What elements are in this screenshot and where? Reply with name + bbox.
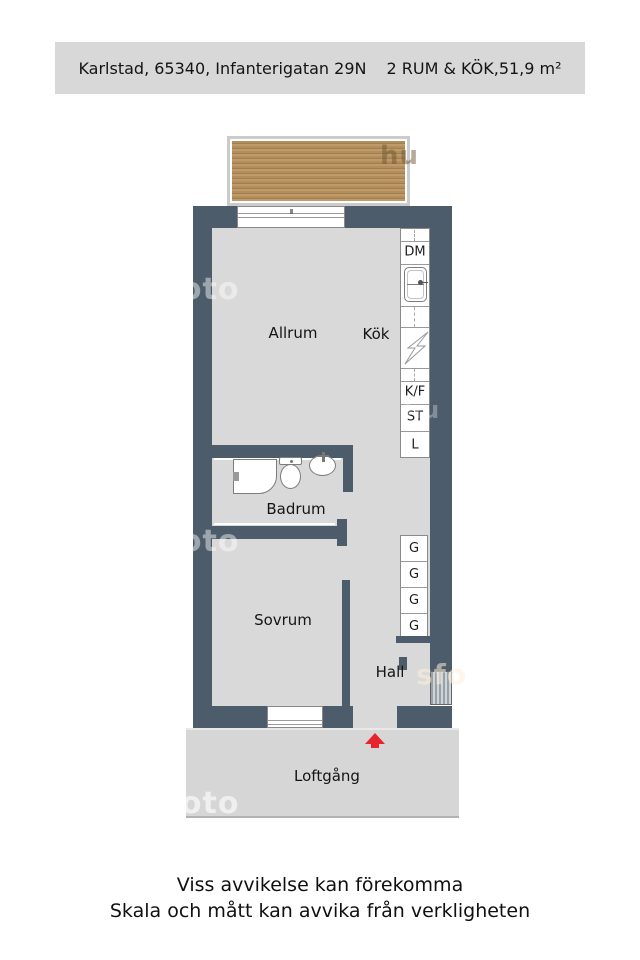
counter-dash (414, 230, 415, 241)
disclaimer-line-2: Skala och mått kan avvika från verklighe… (0, 900, 640, 922)
window-line (238, 217, 344, 218)
wardrobe-cell: G (401, 588, 427, 614)
faucet-icon (318, 455, 329, 457)
entrance-door-icon (430, 671, 452, 705)
floor-plan-page: { "header": { "address": "Karlstad, 6534… (0, 0, 640, 960)
shower-icon (233, 459, 277, 494)
disclaimer-line-1: Viss avvikelse kan förekomma (0, 874, 640, 896)
toilet-flush-icon (290, 460, 293, 463)
window-line (268, 720, 322, 721)
wardrobe-cell: G (401, 562, 427, 588)
kitchen-counter: DM K/F ST L (400, 228, 430, 458)
wall-left (193, 206, 212, 728)
toilet-icon (280, 464, 301, 489)
entrance-arrow-icon (371, 744, 379, 748)
wall-right (430, 206, 452, 671)
counter-dash (414, 369, 415, 381)
counter-line (401, 327, 429, 328)
header-bar: Karlstad, 65340, Infanterigatan 29N 2 RU… (55, 42, 585, 94)
dishwasher-label: DM (401, 245, 429, 260)
shower-drain-icon (233, 472, 239, 481)
wall-badrum-bottom (212, 526, 337, 539)
bedroom-window-icon (267, 706, 323, 728)
wardrobe-end-cap (396, 636, 431, 643)
faucet-icon (322, 452, 325, 462)
l-label: L (401, 438, 429, 453)
badrum-edge-line (214, 523, 335, 525)
wall-badrum-right (343, 445, 353, 492)
window-marker: III (289, 208, 292, 216)
counter-line (401, 368, 429, 369)
stove-icon (403, 331, 429, 365)
header-size-details: 2 RUM & KÖK,51,9 m² (386, 59, 561, 78)
entrance-arrow-icon (365, 733, 385, 744)
wardrobe-cell: G (401, 536, 427, 562)
counter-dash (414, 307, 415, 327)
entrance-opening-bottom (353, 706, 397, 728)
kitchen-sink-icon (404, 267, 427, 302)
room-label-kok: Kök (363, 325, 390, 343)
wall-sovrum-right (342, 580, 350, 706)
wall-bottom-mid (323, 706, 353, 728)
faucet-icon (418, 280, 423, 285)
wall-bottom-left (193, 706, 267, 728)
counter-line (401, 404, 429, 405)
bathroom-sink-icon (309, 455, 336, 476)
wall-badrum-bottom-cap (337, 519, 347, 546)
st-label: ST (401, 410, 429, 425)
counter-line (401, 381, 429, 382)
room-label-hall: Hall (376, 663, 405, 681)
counter-line (401, 306, 429, 307)
counter-line (401, 431, 429, 432)
balcony-deck-icon (232, 141, 405, 201)
room-label-sovrum: Sovrum (254, 611, 312, 629)
counter-line (401, 264, 429, 265)
balcony-window-icon: III (237, 206, 345, 228)
room-label-loftgang: Loftgång (294, 767, 360, 785)
window-line (268, 724, 322, 725)
header-address: Karlstad, 65340, Infanterigatan 29N (78, 59, 366, 78)
balcony (227, 136, 410, 206)
counter-line (401, 241, 429, 242)
room-label-badrum: Badrum (266, 500, 325, 518)
wall-bottom-right (397, 706, 452, 728)
wardrobe-column: G G G G (400, 535, 428, 639)
fridge-freezer-label: K/F (401, 385, 429, 400)
room-label-allrum: Allrum (269, 324, 318, 342)
